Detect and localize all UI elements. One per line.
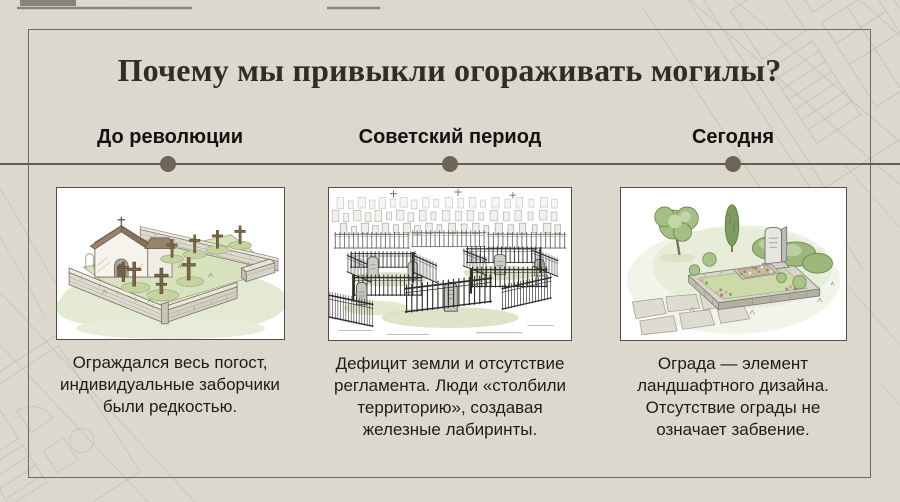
slide: Почему мы привыкли огораживать могилы? Д… bbox=[0, 0, 900, 502]
slide-title: Почему мы привыкли огораживать могилы? bbox=[28, 52, 871, 89]
illustration-soviet-fence-maze bbox=[328, 187, 572, 341]
column-caption-pre-revolution: Ограждался весь погост, индивидуальные з… bbox=[49, 352, 291, 418]
column-today: Сегодня bbox=[598, 124, 868, 441]
column-header-soviet: Советский период bbox=[315, 124, 585, 150]
illustration-modern-landscaped-grave bbox=[620, 187, 847, 341]
column-caption-today: Ограда — элемент ландшафтного дизайна. О… bbox=[626, 353, 840, 441]
column-header-pre-revolution: До революции bbox=[35, 124, 305, 150]
column-soviet-period: Советский период bbox=[315, 124, 585, 441]
column-pre-revolution: До революции bbox=[35, 124, 305, 418]
column-header-today: Сегодня bbox=[598, 124, 868, 150]
illustration-pre-revolution-pogost bbox=[56, 187, 285, 340]
column-caption-soviet: Дефицит земли и отсутствие регламента. Л… bbox=[317, 353, 583, 441]
